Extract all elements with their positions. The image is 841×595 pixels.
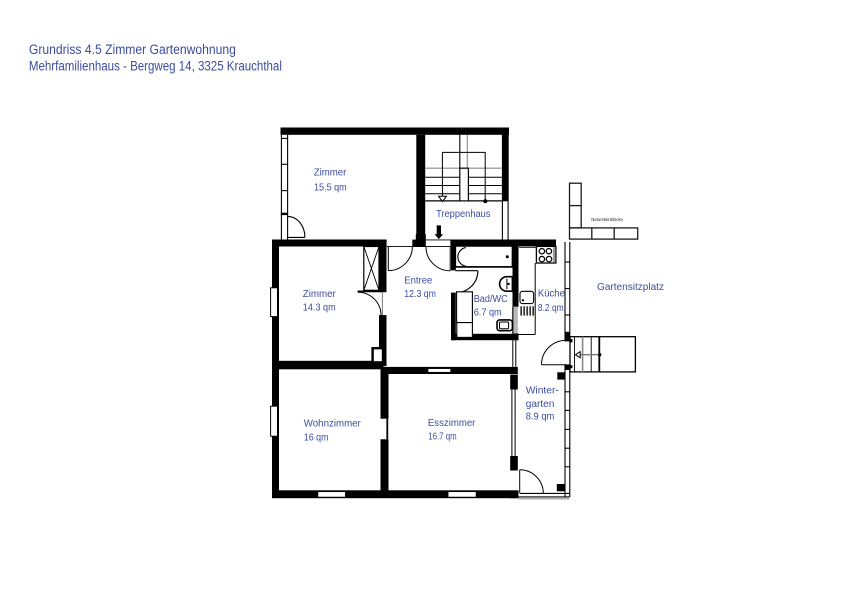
svg-text:Mehrfamilienhaus - Bergweg 14,: Mehrfamilienhaus - Bergweg 14, 3325 Krau… bbox=[29, 59, 282, 75]
svg-text:Esszimmer: Esszimmer bbox=[428, 417, 476, 429]
svg-text:Natursteinblöcke: Natursteinblöcke bbox=[591, 217, 623, 223]
svg-text:Grundriss 4.5 Zimmer Gartenwoh: Grundriss 4.5 Zimmer Gartenwohnung bbox=[29, 42, 236, 58]
svg-text:Winter-: Winter- bbox=[526, 385, 560, 397]
svg-text:8.9 qm: 8.9 qm bbox=[526, 411, 555, 423]
svg-text:8.2 qm: 8.2 qm bbox=[538, 302, 564, 314]
svg-text:Gartensitzplatz: Gartensitzplatz bbox=[597, 281, 664, 293]
svg-text:16.7 qm: 16.7 qm bbox=[428, 431, 456, 443]
svg-text:6.7 qm: 6.7 qm bbox=[474, 306, 502, 318]
svg-text:Küche: Küche bbox=[538, 288, 565, 300]
svg-text:Bad/WC: Bad/WC bbox=[474, 293, 508, 305]
svg-text:Wohnzimmer: Wohnzimmer bbox=[304, 417, 361, 429]
svg-text:14.3 qm: 14.3 qm bbox=[303, 302, 336, 314]
svg-text:Zimmer: Zimmer bbox=[314, 167, 347, 179]
svg-text:garten: garten bbox=[526, 398, 555, 410]
svg-text:Entree: Entree bbox=[404, 275, 432, 287]
svg-text:16 qm: 16 qm bbox=[304, 432, 329, 444]
svg-text:Zimmer: Zimmer bbox=[303, 288, 336, 300]
svg-text:12.3 qm: 12.3 qm bbox=[404, 288, 436, 300]
svg-text:15.5 qm: 15.5 qm bbox=[314, 181, 347, 193]
svg-text:Treppenhaus: Treppenhaus bbox=[436, 208, 490, 220]
